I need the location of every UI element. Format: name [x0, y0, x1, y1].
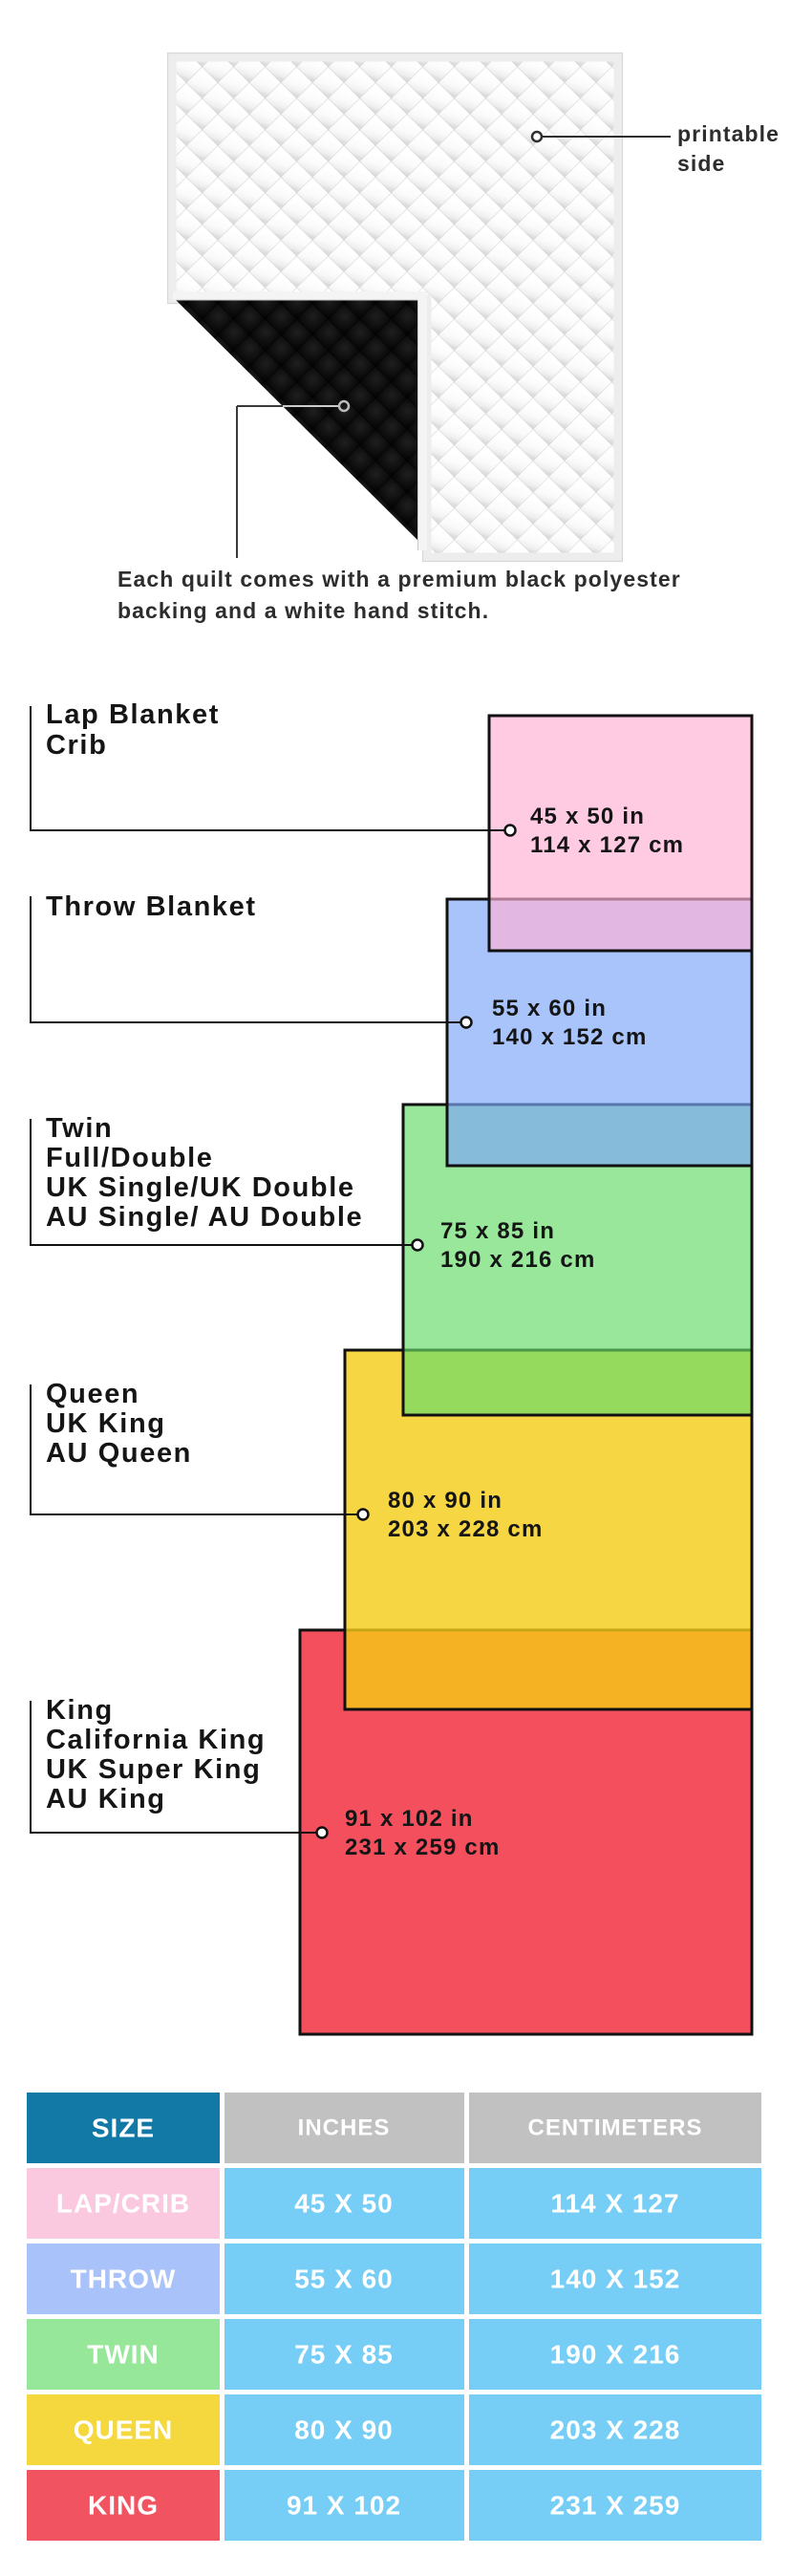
svg-text:Each quilt comes with a premiu: Each quilt comes with a premium black po…: [118, 567, 681, 591]
svg-text:75 X 85: 75 X 85: [294, 2340, 394, 2370]
svg-text:INCHES: INCHES: [298, 2115, 391, 2141]
svg-text:Twin: Twin: [46, 1113, 113, 1144]
svg-text:AU Queen: AU Queen: [46, 1438, 192, 1469]
svg-text:side: side: [677, 151, 725, 176]
svg-text:UK King: UK King: [46, 1408, 166, 1439]
svg-text:55 x 60 in: 55 x 60 in: [492, 996, 607, 1021]
svg-text:75 x 85 in: 75 x 85 in: [440, 1218, 555, 1244]
svg-text:UK Single/UK Double: UK Single/UK Double: [46, 1172, 355, 1203]
svg-text:80 x 90 in: 80 x 90 in: [388, 1488, 502, 1513]
svg-text:SIZE: SIZE: [92, 2114, 155, 2143]
svg-text:45 X 50: 45 X 50: [294, 2189, 394, 2219]
svg-text:203 X 228: 203 X 228: [550, 2415, 681, 2445]
svg-text:91 X 102: 91 X 102: [287, 2491, 401, 2521]
svg-text:45 x 50 in: 45 x 50 in: [530, 804, 645, 829]
svg-text:THROW: THROW: [71, 2265, 177, 2294]
svg-text:140 x 152 cm: 140 x 152 cm: [492, 1024, 648, 1050]
svg-text:backing and a white hand stitc: backing and a white hand stitch.: [118, 598, 489, 623]
svg-text:231 X 259: 231 X 259: [550, 2491, 681, 2521]
svg-text:114 x 127 cm: 114 x 127 cm: [530, 832, 684, 858]
svg-text:TWIN: TWIN: [87, 2340, 160, 2370]
svg-text:203 x 228 cm: 203 x 228 cm: [388, 1516, 544, 1542]
svg-text:AU King: AU King: [46, 1784, 166, 1814]
svg-text:190 X 216: 190 X 216: [550, 2340, 681, 2370]
svg-text:QUEEN: QUEEN: [74, 2415, 174, 2445]
svg-text:55 X 60: 55 X 60: [294, 2265, 394, 2294]
svg-text:printable: printable: [677, 121, 780, 146]
svg-text:Throw Blanket: Throw Blanket: [46, 891, 257, 922]
svg-text:114 X 127: 114 X 127: [550, 2189, 679, 2219]
svg-text:91 x 102 in: 91 x 102 in: [345, 1806, 474, 1832]
svg-text:Queen: Queen: [46, 1379, 139, 1409]
svg-text:LAP/CRIB: LAP/CRIB: [56, 2189, 190, 2219]
svg-text:140 X 152: 140 X 152: [550, 2265, 681, 2294]
svg-text:CENTIMETERS: CENTIMETERS: [527, 2115, 702, 2141]
svg-text:California King: California King: [46, 1725, 266, 1755]
svg-text:King: King: [46, 1695, 114, 1726]
svg-text:80 X 90: 80 X 90: [294, 2415, 394, 2445]
svg-text:190 x 216 cm: 190 x 216 cm: [440, 1247, 596, 1273]
svg-text:KING: KING: [88, 2491, 159, 2521]
svg-text:Crib: Crib: [46, 730, 107, 761]
svg-text:Lap Blanket: Lap Blanket: [46, 699, 220, 730]
svg-text:UK Super King: UK Super King: [46, 1754, 261, 1785]
svg-text:231 x 259 cm: 231 x 259 cm: [345, 1835, 501, 1860]
svg-text:Full/Double: Full/Double: [46, 1143, 213, 1173]
svg-text:AU Single/ AU Double: AU Single/ AU Double: [46, 1202, 363, 1233]
